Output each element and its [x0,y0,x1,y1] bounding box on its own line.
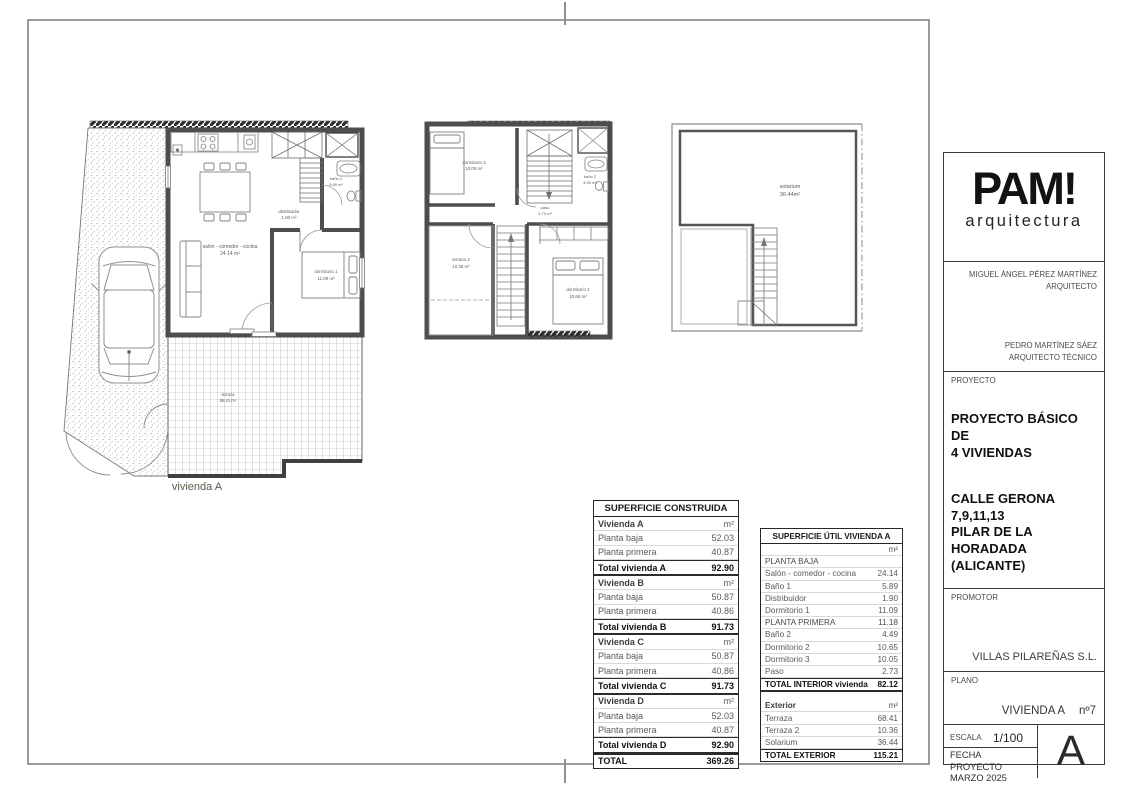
ground-floor-plan: salón - comedor - cocina 24.14 m² distri… [64,121,365,493]
room-area: 36.44m² [780,192,800,198]
row-label: Dormitorio 1 [765,606,810,615]
party-wall-hatch [90,121,348,128]
row-label: Planta primera [598,547,657,557]
logo: PAM! arquitectura [944,166,1104,262]
architect-2: PEDRO MARTÍNEZ SÁEZ ARQUITECTO TÉCNICO [951,340,1097,364]
table-row: Planta baja 52.03 [594,531,738,545]
row-label: PLANTA PRIMERA [765,618,835,627]
row-label: Dormitorio 3 [765,655,810,664]
row-label: Planta baja [598,651,643,661]
table-row: Vivienda A m² [594,517,738,531]
row-label: Total vivienda D [598,740,666,750]
row-label: Planta baja [598,592,643,602]
promotor-section: PROMOTOR VILLAS PILAREÑAS S.L. [944,589,1104,672]
row-label: Dormitorio 2 [765,643,810,652]
row-value: 5.89 [882,582,898,591]
plan-title-vivienda-a: vivienda A [172,481,223,493]
row-value: 40.87 [711,725,734,735]
table-row: Vivienda D m² [594,695,738,709]
row-value: 369.26 [706,756,734,766]
row-label: Solarium [765,738,797,747]
proyecto-label: PROYECTO [951,376,1097,385]
row-value: 4.49 [882,630,898,639]
row-value: 50.87 [711,592,734,602]
row-value: 40.86 [711,606,734,616]
row-label: Exterior [765,701,796,710]
superficie-util-table: SUPERFICIE ÚTIL VIVIENDA A m² PLANTA BAJ… [760,528,903,762]
row-label: Vivienda B [598,578,644,588]
table-row: Dormitorio 2 10.65 [761,642,902,654]
lower-roof [681,229,747,324]
table-row: Paso 2.73 [761,666,902,678]
title-block: PAM! arquitectura MIGUEL ÁNGEL PÉREZ MAR… [943,152,1105,765]
row-value: 24.14 [878,569,899,578]
room-area: 10.65 m² [569,294,587,299]
table-row: Terraza 2 10.36 [761,725,902,737]
room-label: dormitorio 3 [462,160,486,165]
room-area: 24.14 m² [220,251,240,257]
table-row: Planta primera 40.87 [594,723,738,737]
table-row: Planta primera 40.87 [594,546,738,560]
room-area: 10.36 m² [452,264,470,269]
row-value: 50.87 [711,651,734,661]
row-value: 52.03 [711,711,734,721]
row-value: m² [888,701,898,710]
table-row: Planta baja 52.03 [594,709,738,723]
row-value: 92.90 [711,740,734,750]
row-label: TOTAL EXTERIOR [765,751,836,760]
plano-vivienda: VIVIENDA A [1002,705,1065,717]
room-area: 2.73 m² [538,211,552,216]
table-row: TOTAL INTERIOR vivienda 82.12 [761,678,902,692]
row-label: Salón - comedor - cocina [765,569,856,578]
row-value: 2.73 [882,667,898,676]
row-label: Planta baja [598,711,643,721]
sheet-letter: A [1038,725,1104,778]
architect-name: PEDRO MARTÍNEZ SÁEZ [951,340,1097,352]
row-value: m² [724,696,735,706]
room-area: 68.41 m² [220,398,237,403]
row-label: Vivienda A [598,519,644,529]
room-label: salón - comedor - cocina [203,244,258,250]
escala-value: 1/100 [993,731,1023,745]
table-row: Dormitorio 1 11.09 [761,605,902,617]
table-row: Vivienda C m² [594,635,738,649]
row-label: Baño 2 [765,630,791,639]
row-label: Total vivienda B [598,622,666,632]
row-value: 91.73 [711,681,734,691]
table-row: Vivienda B m² [594,576,738,590]
fecha-value: MARZO 2025 [950,773,1031,785]
shaft [326,133,358,157]
superficie-construida-table: SUPERFICIE CONSTRUIDA Vivienda A m² Plan… [593,500,739,769]
plano-label: PLANO [951,676,1097,685]
room-label: baño 1 [330,176,343,181]
row-value: 10.05 [878,655,899,664]
plano-number: nº7 [1079,705,1096,717]
row-value: 11.09 [878,606,898,615]
car-top-view [92,247,166,383]
table-row: TOTAL EXTERIOR 115.21 [761,749,902,761]
row-value: 52.03 [711,533,734,543]
row-label: Planta primera [598,606,657,616]
plano-name: VIVIENDA Anº7 [1002,705,1096,717]
row-value: 40.87 [711,547,734,557]
row-label: TOTAL INTERIOR vivienda [765,680,868,689]
table-title: SUPERFICIE ÚTIL VIVIENDA A [761,529,902,544]
room-label: dormitorio 1 [314,269,338,274]
row-value: m² [724,637,735,647]
solarium-plan: solarium 36.44m² [672,124,862,331]
table-row: Distribuidor 1.90 [761,593,902,605]
plano-section: PLANO VIVIENDA Anº7 [944,672,1104,725]
shaft [578,128,608,153]
architect-name: MIGUEL ÁNGEL PÉREZ MARTÍNEZ [951,269,1097,281]
row-label: Total vivienda C [598,681,666,691]
table-row: Planta primera 40.86 [594,664,738,678]
room-label: paso [541,205,550,210]
escala-cell: ESCALA 1/100 [944,725,1037,748]
room-area: 1.90 m² [282,215,297,220]
row-value: 115.21 [873,751,898,760]
room-label: distribuidor [278,209,300,214]
table-row: PLANTA BAJA [761,556,902,568]
terrace [168,337,362,476]
row-label: Planta primera [598,725,657,735]
table-title: SUPERFICIE CONSTRUIDA [594,501,738,517]
table-row: Total vivienda C 91.73 [594,678,738,694]
table-row: m² [761,544,902,556]
room-area: 4.49 m² [583,180,597,185]
row-value: 68.41 [878,714,899,723]
room-label: terraza 2 [452,257,470,262]
row-value: 92.90 [711,563,734,573]
row-value: 10.65 [878,643,899,652]
architects-section: MIGUEL ÁNGEL PÉREZ MARTÍNEZ ARQUITECTO P… [944,262,1104,372]
row-label: Terraza 2 [765,726,799,735]
table-row: Total vivienda D 92.90 [594,737,738,753]
promotor-label: PROMOTOR [951,593,1097,602]
table-row: Planta baja 50.87 [594,590,738,604]
room-area: 11.09 m² [317,276,335,281]
row-value: 1.90 [882,594,898,603]
room-label: baño 2 [584,174,597,179]
row-label: Planta primera [598,666,657,676]
table-row: Terraza 68.41 [761,712,902,724]
logo-pam: PAM! [944,166,1104,211]
room-area: 5.89 m² [329,182,343,187]
row-value: m² [888,545,898,554]
first-floor-plan: dormitorio 3 10.05 m² baño 2 4.49 m² pas… [427,121,610,337]
dining-table [200,163,250,221]
room-label: dormitorio 2 [566,287,590,292]
row-label: Planta baja [598,533,643,543]
project-title: PROYECTO BÁSICO DE 4 VIVIENDAS [951,411,1097,462]
architect-role: ARQUITECTO TÉCNICO [951,352,1097,364]
row-label: Paso [765,667,784,676]
table-row: Salón - comedor - cocina 24.14 [761,568,902,580]
row-label: Vivienda D [598,696,644,706]
promotor-name: VILLAS PILAREÑAS S.L. [972,651,1097,663]
row-value: 11.18 [878,618,898,627]
row-label: TOTAL [598,756,627,766]
fecha-cell: FECHA PROYECTO MARZO 2025 [944,748,1037,787]
table-row: Dormitorio 3 10.05 [761,654,902,666]
row-value: m² [724,519,735,529]
room-label: solarium [780,184,801,190]
row-value: 10.36 [878,726,899,735]
project-address: CALLE GERONA 7,9,11,13 PILAR DE LA HORAD… [951,491,1097,575]
titleblock-bottom: ESCALA 1/100 FECHA PROYECTO MARZO 2025 A [944,725,1104,778]
table-row [761,692,902,700]
proyecto-section: PROYECTO PROYECTO BÁSICO DE 4 VIVIENDAS … [944,372,1104,589]
table-row: Planta baja 50.87 [594,650,738,664]
row-label: PLANTA BAJA [765,557,819,566]
row-label: Baño 1 [765,582,791,591]
row-label: Distribuidor [765,594,806,603]
row-value: 82.12 [878,680,899,689]
architect-role: ARQUITECTO [951,281,1097,293]
row-value: m² [724,578,735,588]
row-value: 91.73 [711,622,734,632]
exterior-walls [168,130,362,335]
table-row: Baño 1 5.89 [761,581,902,593]
table-row: TOTAL 369.26 [594,754,738,768]
table-row: Total vivienda B 91.73 [594,619,738,635]
table-row: Exterior m² [761,700,902,712]
room-area: 10.05 m² [465,166,483,171]
table-row: Planta primera 40.86 [594,605,738,619]
logo-arquitectura: arquitectura [944,212,1104,231]
row-value: 40.86 [711,666,734,676]
table-row: PLANTA PRIMERA 11.18 [761,617,902,629]
row-value: 36.44 [878,738,899,747]
table-row: Total vivienda A 92.90 [594,560,738,576]
row-label: Terraza [765,714,792,723]
table-row: Baño 2 4.49 [761,629,902,641]
room-label: terraza [221,392,235,397]
row-label: Total vivienda A [598,563,666,573]
escala-label: ESCALA [950,733,982,742]
architect-1: MIGUEL ÁNGEL PÉREZ MARTÍNEZ ARQUITECTO [951,269,1097,293]
row-label: Vivienda C [598,637,644,647]
fecha-label: FECHA PROYECTO [950,750,1031,773]
table-row: Solarium 36.44 [761,737,902,749]
